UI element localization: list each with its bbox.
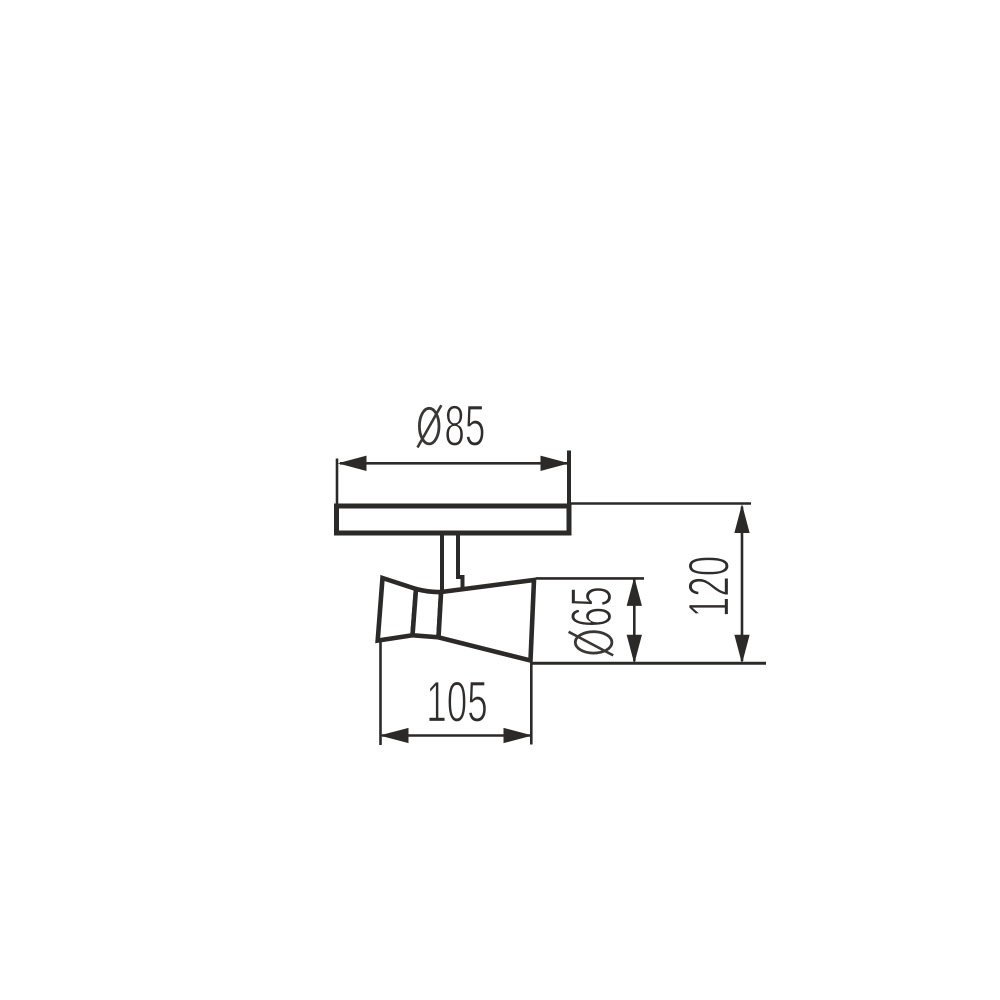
svg-text:65: 65 [560, 586, 624, 627]
svg-text:120: 120 [677, 556, 741, 617]
svg-text:85: 85 [444, 394, 485, 458]
svg-text:105: 105 [426, 670, 487, 734]
